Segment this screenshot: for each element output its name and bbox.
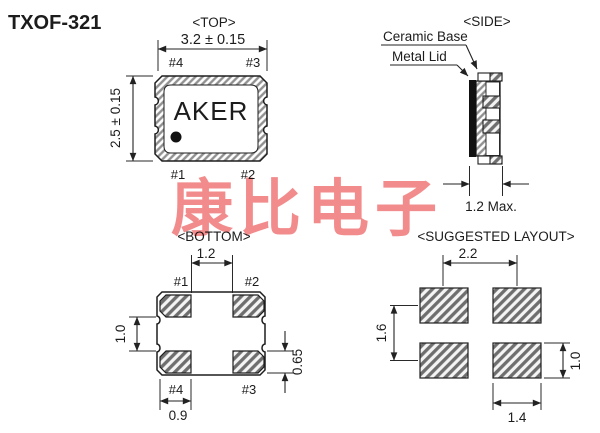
bottom-pad-3 xyxy=(233,351,264,373)
bottom-pad-4 xyxy=(160,351,191,373)
bottom-view: <BOTTOM> 1.2 #1 #2 1.0 0.65 #4 #3 xyxy=(113,229,305,423)
layout-padheight-dimension xyxy=(544,343,570,378)
pin-label-4-bottom: #4 xyxy=(169,382,183,397)
top-package: AKER xyxy=(155,76,267,161)
metal-lid-strip xyxy=(469,80,476,157)
pin-label-3-bottom: #3 xyxy=(242,382,256,397)
layout-pad-bottom-left xyxy=(420,343,468,378)
pin-label-1-bottom: #1 xyxy=(174,274,188,289)
layout-pitchx-dim-text: 2.2 xyxy=(459,246,478,261)
top-width-dim-text: 3.2 ± 0.15 xyxy=(181,32,245,48)
side-top-pad-hatch xyxy=(490,73,502,81)
bottom-padheight-dim-text: 0.65 xyxy=(290,349,305,375)
page-title: TXOF-321 xyxy=(8,12,101,34)
layout-pitchy-dimension xyxy=(390,306,418,361)
side-thickness-dim-text: 1.2 Max. xyxy=(465,199,517,214)
watermark-text: 康比电子 xyxy=(152,170,462,248)
side-castellation-pad-1 xyxy=(483,96,500,108)
ceramic-base-callout: Ceramic Base xyxy=(383,29,468,44)
top-height-dimension xyxy=(126,76,153,161)
layout-padheight-dim-text: 1.0 xyxy=(568,352,583,371)
side-castellation-pad-2 xyxy=(483,120,500,133)
layout-padwidth-dimension xyxy=(493,383,541,410)
layout-pitchx-dimension xyxy=(443,255,517,286)
side-gap-3 xyxy=(486,133,500,156)
side-package xyxy=(469,73,502,164)
pin-label-4-top: #4 xyxy=(169,55,183,70)
layout-view: <SUGGESTED LAYOUT> 2.2 1.6 1.0 1.4 xyxy=(374,229,583,425)
pin1-index-dot xyxy=(171,132,182,143)
bottom-gapy-dimension xyxy=(129,317,156,351)
metal-lid-leader xyxy=(390,65,468,76)
side-gap-1 xyxy=(486,82,500,96)
side-gap-2 xyxy=(486,108,500,120)
layout-pad-top-left xyxy=(420,288,468,323)
side-bottom-pad-hatch xyxy=(490,156,502,164)
metal-lid-callout: Metal Lid xyxy=(392,49,447,64)
bottom-padwidth-dim-text: 0.9 xyxy=(169,408,188,423)
side-view-label: <SIDE> xyxy=(463,14,510,29)
brand-marking: AKER xyxy=(174,96,249,126)
bottom-pad-2 xyxy=(233,295,264,317)
bottom-pad-1 xyxy=(160,295,191,317)
top-view: <TOP> 3.2 ± 0.15 #4 #3 AKER 2.5 ± 0.15 #… xyxy=(108,15,267,182)
layout-pad-bottom-right xyxy=(493,343,541,378)
pin-label-3-top: #3 xyxy=(246,55,260,70)
datasheet-drawing: TXOF-321 <TOP> 3.2 ± 0.15 #4 #3 AKER 2.5… xyxy=(0,0,600,433)
bottom-gapy-dim-text: 1.0 xyxy=(113,325,128,344)
top-view-label: <TOP> xyxy=(192,15,235,30)
top-height-dim-text: 2.5 ± 0.15 xyxy=(108,88,123,148)
layout-padwidth-dim-text: 1.4 xyxy=(508,410,527,425)
layout-pitchy-dim-text: 1.6 xyxy=(374,324,389,343)
bottom-gapx-dim-text: 1.2 xyxy=(197,246,216,261)
layout-pad-top-right xyxy=(493,288,541,323)
pin-label-2-bottom: #2 xyxy=(245,274,259,289)
